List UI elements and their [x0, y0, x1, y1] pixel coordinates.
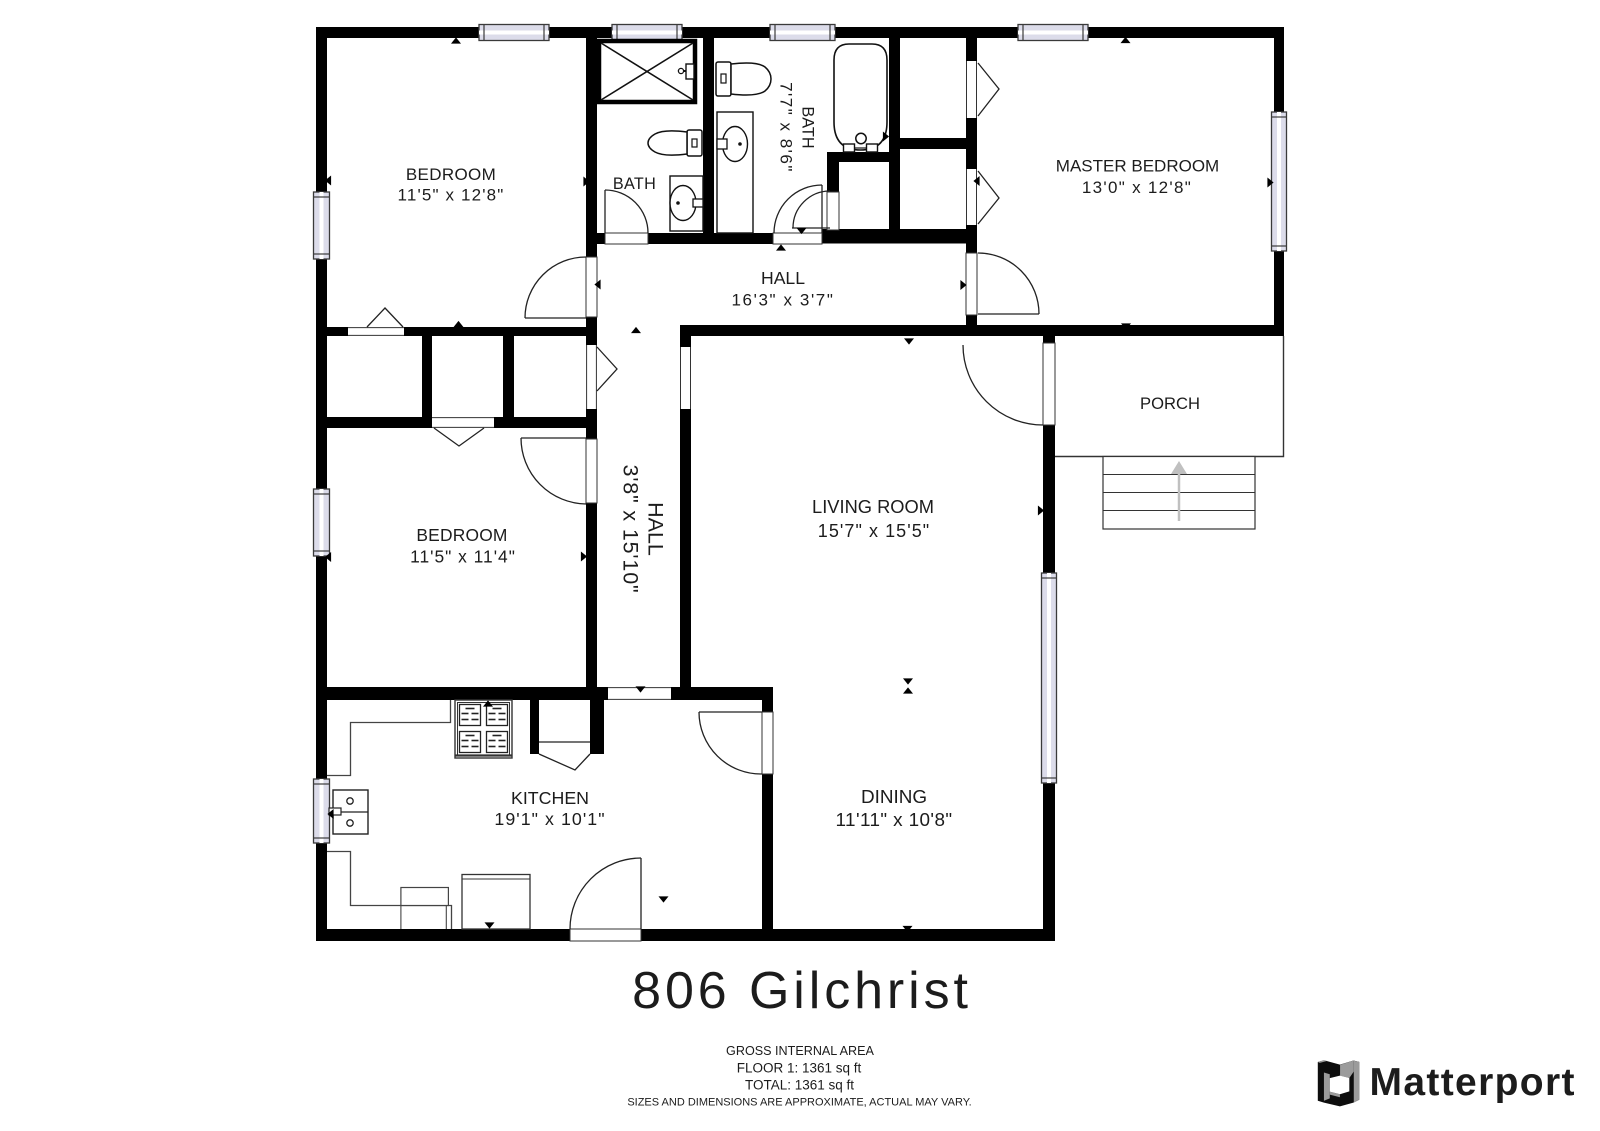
- svg-text:SIZES AND DIMENSIONS ARE APPRO: SIZES AND DIMENSIONS ARE APPROXIMATE, AC…: [627, 1097, 971, 1109]
- svg-text:11'5" x 11'4": 11'5" x 11'4": [410, 547, 516, 567]
- svg-text:HALL: HALL: [761, 268, 805, 288]
- svg-text:PORCH: PORCH: [1140, 394, 1200, 413]
- svg-text:GROSS INTERNAL AREA: GROSS INTERNAL AREA: [726, 1044, 874, 1058]
- svg-text:BATH: BATH: [613, 175, 656, 193]
- svg-text:Matterport: Matterport: [1370, 1061, 1576, 1104]
- svg-text:FLOOR 1: 1361 sq ft: FLOOR 1: 1361 sq ft: [737, 1061, 862, 1076]
- svg-text:BEDROOM: BEDROOM: [406, 165, 496, 184]
- svg-text:13'0" x 12'8": 13'0" x 12'8": [1082, 178, 1192, 197]
- svg-text:LIVING ROOM: LIVING ROOM: [812, 496, 934, 517]
- svg-text:3'8" x 15'10": 3'8" x 15'10": [619, 465, 643, 594]
- svg-text:15'7" x 15'5": 15'7" x 15'5": [818, 521, 931, 541]
- svg-text:7'7" x 8'6": 7'7" x 8'6": [777, 82, 796, 173]
- svg-text:11'11" x 10'8": 11'11" x 10'8": [836, 810, 953, 831]
- svg-text:16'3" x 3'7": 16'3" x 3'7": [732, 291, 835, 310]
- svg-text:BEDROOM: BEDROOM: [416, 525, 507, 545]
- svg-text:BATH: BATH: [799, 106, 817, 148]
- svg-text:DINING: DINING: [861, 787, 927, 808]
- svg-text:11'5" x 12'8": 11'5" x 12'8": [398, 186, 505, 205]
- svg-text:806 Gilchrist: 806 Gilchrist: [632, 962, 972, 1020]
- svg-text:HALL: HALL: [644, 502, 668, 556]
- svg-text:MASTER BEDROOM: MASTER BEDROOM: [1056, 156, 1219, 175]
- svg-text:KITCHEN: KITCHEN: [511, 788, 589, 808]
- svg-text:19'1" x 10'1": 19'1" x 10'1": [494, 809, 605, 829]
- svg-text:TOTAL: 1361 sq ft: TOTAL: 1361 sq ft: [745, 1078, 854, 1093]
